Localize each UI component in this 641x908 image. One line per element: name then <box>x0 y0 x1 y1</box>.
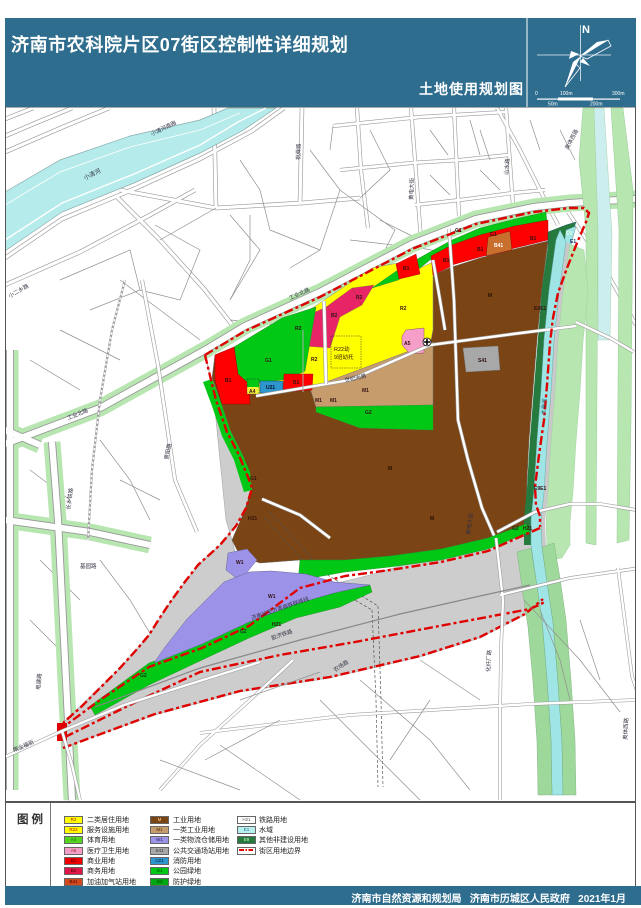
svg-text:R2: R2 <box>295 326 302 332</box>
svg-text:H21: H21 <box>248 516 257 522</box>
svg-text:G1: G1 <box>250 476 257 482</box>
svg-text:E1: E1 <box>570 239 576 245</box>
svg-text:B1: B1 <box>530 236 537 242</box>
svg-text:0: 0 <box>535 91 538 97</box>
svg-text:B1: B1 <box>477 247 484 253</box>
svg-text:R2: R2 <box>311 357 318 363</box>
svg-text:E9: E9 <box>566 231 572 237</box>
svg-text:M1: M1 <box>330 398 337 404</box>
svg-text:M1: M1 <box>362 388 369 394</box>
svg-text:E9E1: E9E1 <box>534 306 546 312</box>
svg-text:R22幼: R22幼 <box>334 345 350 353</box>
svg-text:G2: G2 <box>365 410 372 416</box>
svg-text:U21: U21 <box>266 385 275 391</box>
svg-text:A4: A4 <box>249 389 256 395</box>
svg-text:G2: G2 <box>140 673 147 679</box>
svg-text:G1: G1 <box>455 228 462 234</box>
svg-text:E9E1: E9E1 <box>534 486 546 492</box>
svg-text:H21: H21 <box>272 622 281 628</box>
svg-text:W1: W1 <box>268 594 276 600</box>
svg-text:M1: M1 <box>315 398 322 404</box>
svg-text:B1: B1 <box>403 266 410 272</box>
svg-text:G2: G2 <box>240 629 247 635</box>
svg-text:R2: R2 <box>356 295 363 301</box>
svg-text:9班幼托: 9班幼托 <box>334 353 354 361</box>
svg-text:G1: G1 <box>490 232 497 238</box>
svg-text:H21: H21 <box>523 526 532 532</box>
svg-text:M: M <box>488 293 492 299</box>
svg-text:A5: A5 <box>404 341 411 347</box>
svg-text:B1: B1 <box>225 378 232 384</box>
svg-text:N: N <box>582 24 590 36</box>
svg-text:B41: B41 <box>494 243 503 249</box>
svg-text:G2: G2 <box>512 526 519 532</box>
svg-text:B1: B1 <box>293 380 300 386</box>
svg-text:M: M <box>430 516 434 522</box>
svg-text:B1: B1 <box>443 258 450 264</box>
svg-text:R2: R2 <box>400 306 407 312</box>
svg-text:基园路: 基园路 <box>80 562 97 570</box>
svg-text:300m: 300m <box>612 91 625 97</box>
svg-text:G1: G1 <box>265 358 272 364</box>
svg-text:B2: B2 <box>331 313 338 319</box>
svg-text:M: M <box>388 466 392 472</box>
svg-text:S41: S41 <box>478 358 487 364</box>
svg-text:100m: 100m <box>560 91 573 97</box>
svg-text:W1: W1 <box>236 560 244 566</box>
